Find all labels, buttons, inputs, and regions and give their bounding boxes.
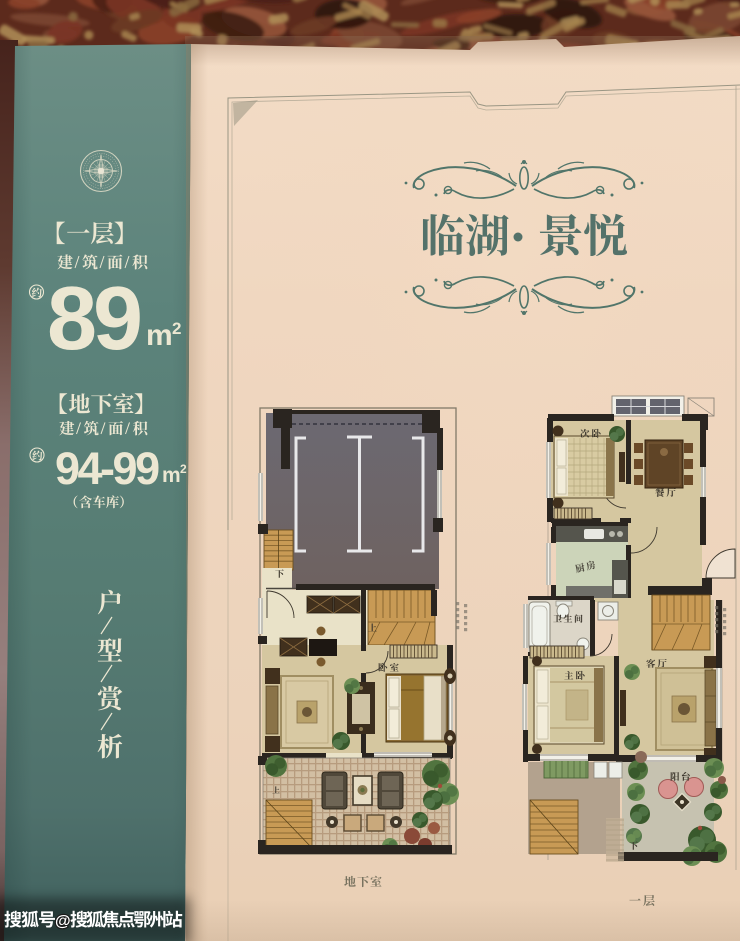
svg-text:m: m <box>146 319 173 352</box>
svg-text:89: 89 <box>47 269 140 369</box>
svg-text:2: 2 <box>172 319 181 338</box>
svg-text:m: m <box>162 464 181 487</box>
svg-text:@: @ <box>55 913 71 930</box>
svg-text:94-99: 94-99 <box>55 443 159 494</box>
svg-text:2: 2 <box>180 462 187 476</box>
